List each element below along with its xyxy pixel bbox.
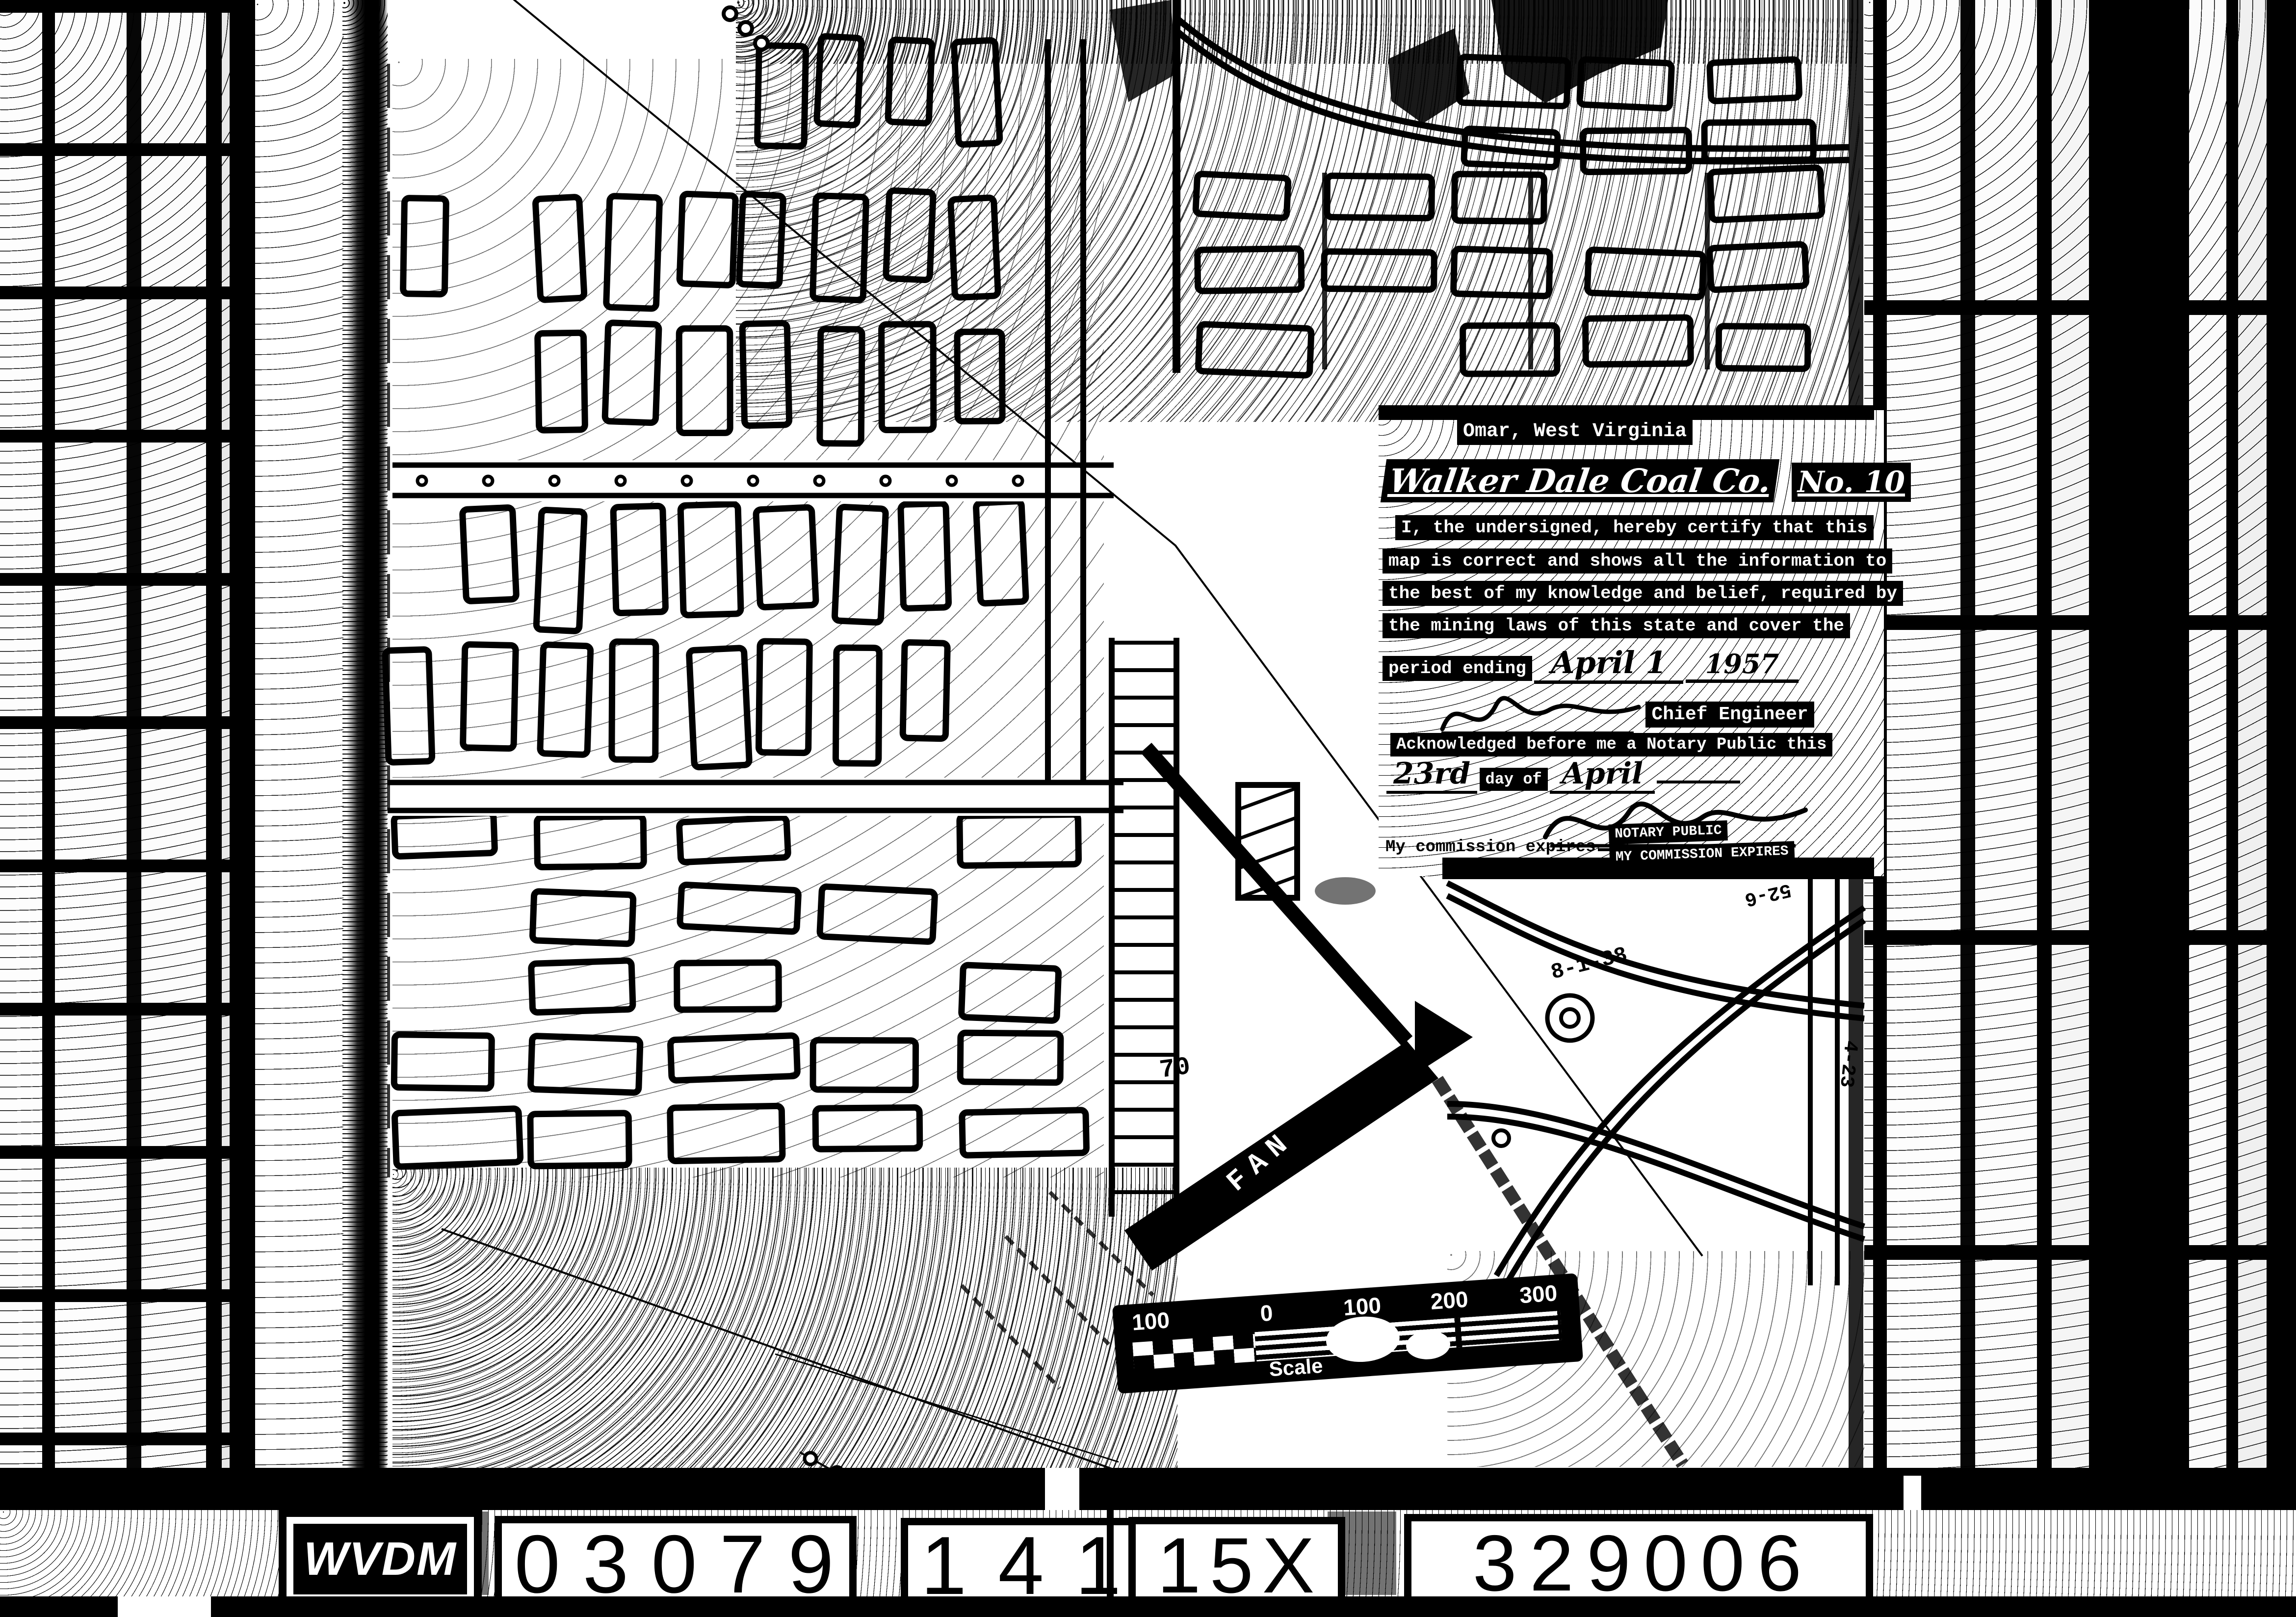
mine-pillar: [957, 332, 1002, 421]
notary-stamp-line-1: NOTARY PUBLIC: [1609, 820, 1728, 844]
surface-roads-inset: [1447, 873, 1864, 1285]
mine-pillar: [403, 198, 446, 294]
mine-pillar: [835, 648, 879, 763]
mine-pillar: [950, 198, 998, 298]
scale-tick-0: 0: [1259, 1300, 1274, 1327]
scale-ruled-segment: [1254, 1311, 1562, 1361]
scale-white-blotch: [1325, 1314, 1401, 1364]
mine-pillar: [530, 1113, 629, 1166]
mine-pillar: [1710, 59, 1800, 102]
mine-pillar: [540, 645, 591, 755]
mine-pillar: [954, 40, 1000, 145]
mine-pillar: [1196, 174, 1288, 218]
mine-pillar: [820, 887, 935, 942]
mine-pillar: [757, 45, 806, 146]
microfilm-mine-map-scan: FAN 8-1-38 10-20-28 52-6 4-23 70 Omar, W…: [0, 0, 2296, 1617]
mine-pillar: [815, 1107, 920, 1149]
mine-pillar: [385, 650, 432, 763]
certification-block: Omar, West Virginia Walker Dale Coal Co.…: [1379, 410, 1884, 876]
annotation-70: 70: [1158, 1052, 1192, 1085]
certificate-location: Omar, West Virginia: [1457, 418, 1693, 445]
annotation-date-3: 52-6: [1743, 878, 1794, 910]
mine-pillar: [813, 1040, 916, 1090]
mine-pillar: [606, 196, 659, 309]
certificate-body-line-1: I, the undersigned, hereby certify that …: [1395, 515, 1874, 540]
certificate-company: Walker Dale Coal Co.: [1381, 459, 1780, 502]
mine-pillar: [816, 36, 861, 126]
mine-pillar: [670, 1036, 797, 1081]
mine-pillar: [835, 507, 886, 623]
certificate-body-line-2: map is correct and shows all the informa…: [1383, 548, 1892, 574]
scale-tick-200: 200: [1430, 1286, 1469, 1315]
mine-pillar: [886, 190, 934, 280]
mine-pillar: [758, 641, 809, 753]
mine-pillar: [1463, 325, 1557, 374]
film-frame-band-bottom: [0, 1596, 2296, 1617]
mine-pillar: [1709, 244, 1806, 290]
certificate-day-value: 23rd: [1386, 756, 1477, 794]
mine-pillar: [903, 642, 947, 738]
mine-pillar: [1198, 248, 1302, 291]
mine-pillar: [670, 1106, 783, 1161]
certificate-period-label: period ending: [1383, 656, 1532, 681]
film-frame-band-top: [0, 1468, 2296, 1510]
mine-pillar: [394, 813, 495, 857]
certificate-commission-label: My commission expires: [1385, 838, 1595, 857]
mine-pillar: [961, 965, 1059, 1021]
mine-pillar: [1198, 324, 1311, 376]
mine-pillar: [677, 963, 779, 1010]
mine-pillar: [888, 40, 932, 124]
wvdm-label: WVDM: [304, 1532, 457, 1586]
haulageway-rungs: [1112, 643, 1176, 1192]
mine-pillar: [394, 1108, 521, 1167]
mine-pillar: [1587, 250, 1704, 297]
mine-pillar: [1324, 252, 1435, 290]
mine-pillar: [679, 329, 730, 433]
certificate-day-label: day of: [1480, 768, 1548, 791]
scale-caption: Scale: [1268, 1354, 1324, 1382]
certificate-period-date: April 1: [1534, 645, 1683, 684]
mine-pillar: [613, 506, 666, 613]
mine-pillar: [1585, 317, 1691, 365]
mine-pillar: [820, 329, 862, 444]
mine-pillar: [463, 644, 516, 748]
mine-pillar: [462, 507, 516, 601]
mine-pillar: [962, 1110, 1087, 1156]
mine-pillar: [756, 507, 816, 607]
scale-tick-100-left: 100: [1131, 1306, 1170, 1335]
mine-pillar: [901, 503, 949, 608]
mine-pillar: [1327, 176, 1432, 218]
mine-pillar: [536, 510, 585, 631]
certificate-body-line-3: the best of my knowledge and belief, req…: [1383, 581, 1903, 606]
mine-pillar: [394, 1035, 492, 1089]
mine-pillar: [1704, 122, 1813, 160]
certificate-signature-title: Chief Engineer: [1645, 702, 1814, 728]
chief-engineer-signature-scrawl: [1437, 685, 1644, 739]
mine-pillar: [739, 194, 783, 286]
scale-tick-300: 300: [1519, 1279, 1558, 1308]
certificate-period-year: 1957: [1686, 648, 1799, 683]
mine-pillar: [742, 323, 789, 426]
mine-pillar: [680, 504, 741, 615]
mine-pillar: [689, 648, 749, 768]
mine-pillar: [1719, 326, 1808, 369]
mine-pillar: [530, 1036, 640, 1093]
mine-pillar: [976, 501, 1026, 603]
mine-pillar: [1710, 167, 1822, 220]
mine-pillar: [538, 333, 585, 430]
certificate-ack-line: Acknowledged before me a Notary Public t…: [1390, 733, 1832, 756]
certificate-body-line-4: the mining laws of this state and cover …: [1383, 613, 1850, 638]
mine-pillar: [960, 1033, 1061, 1083]
mine-pillar: [531, 961, 633, 1013]
certificate-company-number: No. 10: [1792, 463, 1911, 502]
mine-pillar: [960, 814, 1079, 865]
mine-pillar: [535, 197, 584, 300]
mine-pillar: [680, 885, 799, 932]
mine-pillar: [1453, 249, 1550, 296]
mine-pillar: [537, 816, 644, 867]
mine-pillar: [605, 323, 659, 423]
mine-pillar: [612, 642, 656, 760]
mine-pillar: [679, 817, 788, 862]
code-4: 329006: [1473, 1518, 1815, 1609]
mine-pillar: [532, 891, 633, 944]
wvdm-label-box: WVDM: [293, 1524, 467, 1594]
mine-pillar: [679, 194, 736, 286]
